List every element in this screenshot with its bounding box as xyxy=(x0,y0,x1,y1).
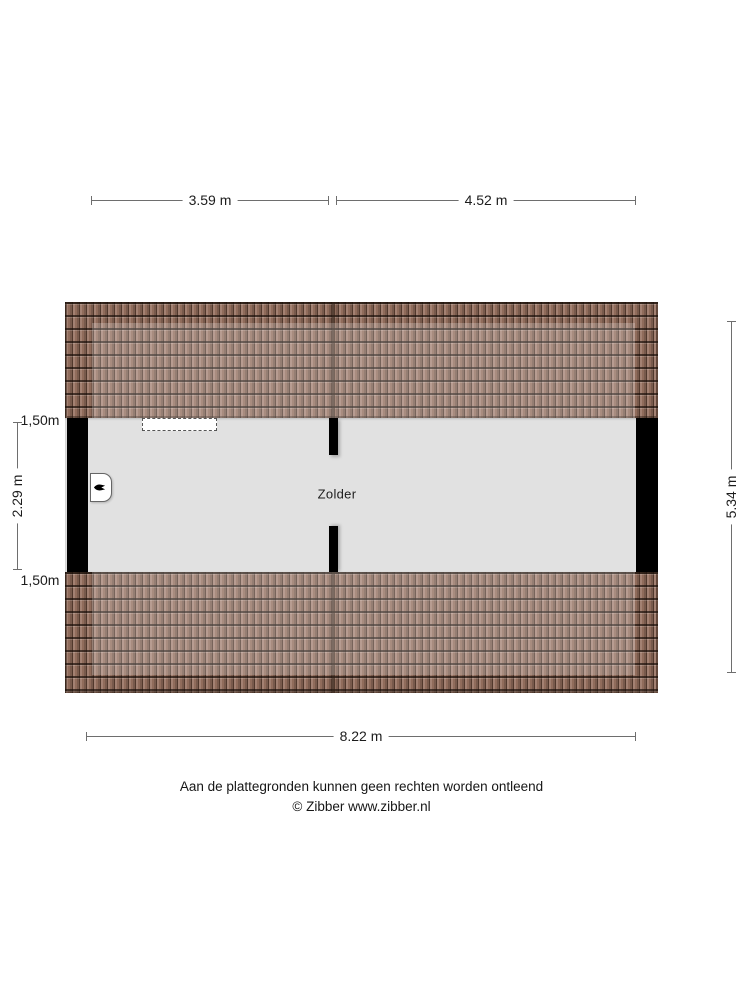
dimension-top-left: 3.59 m xyxy=(91,200,329,201)
roof-section-bottom xyxy=(65,572,658,693)
footer: Aan de plattegronden kunnen geen rechten… xyxy=(65,777,658,818)
attic-room: Zolder xyxy=(65,418,658,572)
entrance-arrow-icon xyxy=(93,481,106,494)
dimension-right-label: 5.34 m xyxy=(723,470,739,525)
roof-ridge-seam xyxy=(332,572,335,693)
attic-floorplan: Zolder xyxy=(65,302,658,693)
door-panel xyxy=(90,473,112,502)
dimension-top-left-label: 3.59 m xyxy=(183,192,238,208)
roof-section-top xyxy=(65,302,658,418)
wall-right xyxy=(636,418,658,572)
dimension-left-upper-label: 1,50m xyxy=(21,412,60,428)
dimension-left-lower-label: 1,50m xyxy=(21,572,60,588)
dimension-bottom-label: 8.22 m xyxy=(334,728,389,744)
dimension-right: 5.34 m xyxy=(731,321,732,673)
dimension-top-right-label: 4.52 m xyxy=(459,192,514,208)
wall-stub-bottom xyxy=(329,526,338,572)
footer-disclaimer: Aan de plattegronden kunnen geen rechten… xyxy=(65,777,658,797)
roof-ridge-seam xyxy=(332,302,335,418)
floorplan-page: 3.59 m 4.52 m 1,50m 2.29 m 1,50m 5.34 m … xyxy=(0,0,750,1000)
dimension-bottom: 8.22 m xyxy=(86,736,636,737)
footer-credit: © Zibber www.zibber.nl xyxy=(65,797,658,817)
wall-stub-top xyxy=(329,418,338,455)
dimension-left-middle: 2.29 m xyxy=(17,422,18,570)
dimension-top-right: 4.52 m xyxy=(336,200,636,201)
dimension-left-middle-label: 2.29 m xyxy=(9,469,25,524)
room-name-label: Zolder xyxy=(318,487,357,502)
skylight-dashed-window xyxy=(142,418,217,431)
wall-left xyxy=(67,418,88,572)
